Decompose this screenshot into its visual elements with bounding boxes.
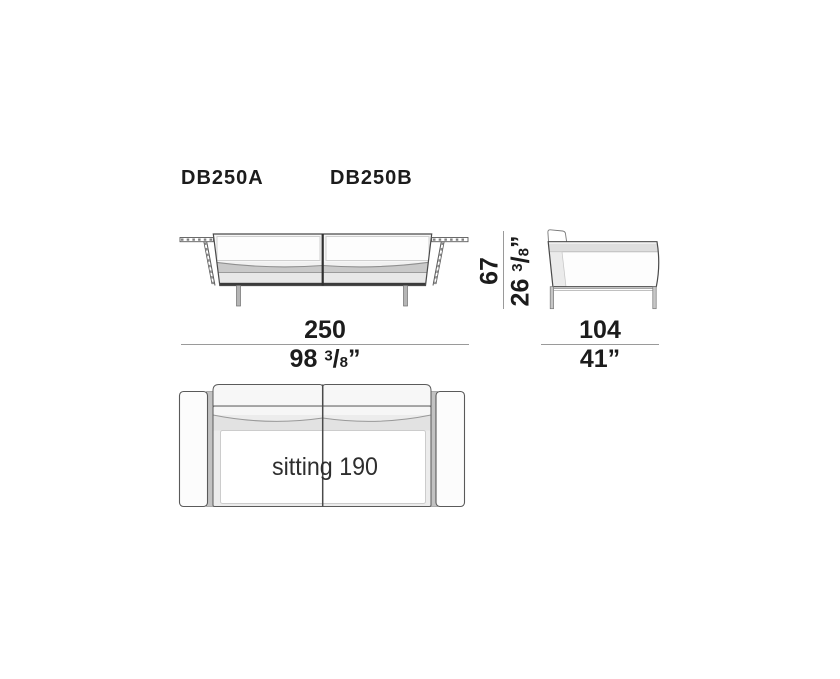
front-leg-right [404,286,408,307]
height-frac-denominator: 8 [516,248,533,256]
depth-cm-value: 104 [541,318,659,343]
spec-sheet: DB250A DB250B [0,0,840,679]
arm-side-left-hatching [205,243,213,285]
backrest-top-right-cushion [323,385,431,407]
height-inch-whole: 26 [507,279,535,307]
width-cm-value: 250 [181,318,469,343]
height-frac-slash: / [507,256,535,263]
backrest-top-left-cushion [213,385,323,407]
height-cm-value: 67 [478,257,503,285]
top-view-drawing [178,383,468,509]
seat-width-label: sitting 190 [255,455,395,480]
height-inch-mark: ” [507,236,535,249]
side-leg-back [550,287,553,309]
width-frac-numerator: 3 [324,348,332,365]
front-view-drawing [178,226,470,308]
top-rail-band [548,244,657,252]
armrest-left [180,238,213,242]
model-title-a: DB250A [181,168,264,188]
backrest-cushion-left [217,237,320,261]
armrest-top-left [180,392,208,507]
model-title-b: DB250B [330,168,413,188]
backrest-cushion-right [326,237,429,261]
arm-side-right-hatching [435,243,443,285]
width-inch-mark: ” [348,345,361,373]
width-inch-whole: 98 [290,345,318,373]
armrest-profile [548,230,567,243]
width-frac-slash: / [333,345,340,373]
width-frac-denominator: 8 [340,354,348,371]
height-inch-value: 26 3/8” [509,236,534,307]
width-inch-value: 98 3/8” [181,347,469,372]
width-dimension-line [181,344,469,345]
armrest-top-right [436,392,465,507]
side-leg-front [653,287,656,309]
front-leg-left [237,286,241,307]
depth-inch-value: 41” [541,347,659,372]
side-view-drawing [540,226,670,312]
height-frac-numerator: 3 [509,263,526,271]
